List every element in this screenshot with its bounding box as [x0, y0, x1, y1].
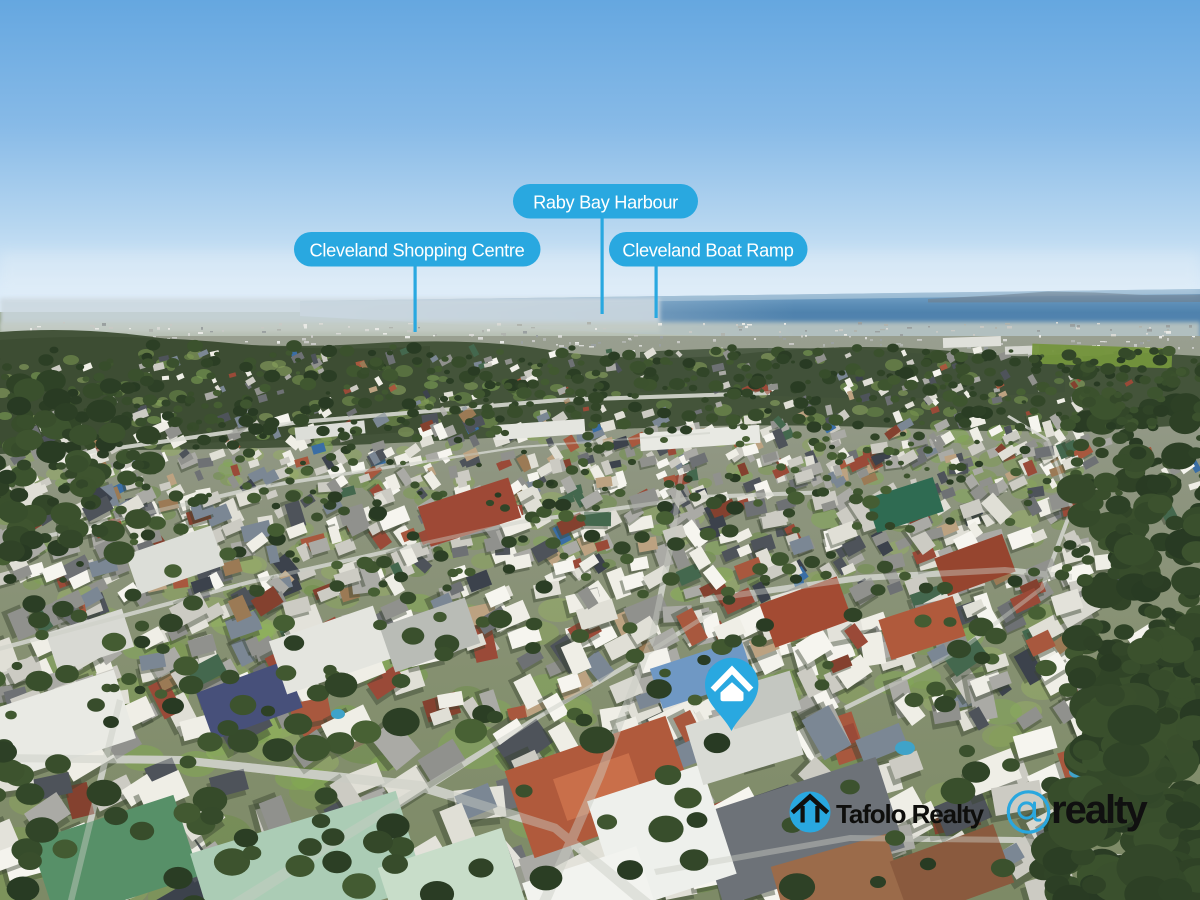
svg-text:Cleveland Boat Ramp: Cleveland Boat Ramp [622, 241, 793, 261]
svg-text:Cleveland Shopping Centre: Cleveland Shopping Centre [310, 241, 525, 261]
svg-text:realty: realty [1051, 788, 1148, 832]
svg-text:Raby Bay Harbour: Raby Bay Harbour [533, 193, 678, 213]
svg-text:Tafolo Realty: Tafolo Realty [836, 799, 985, 829]
